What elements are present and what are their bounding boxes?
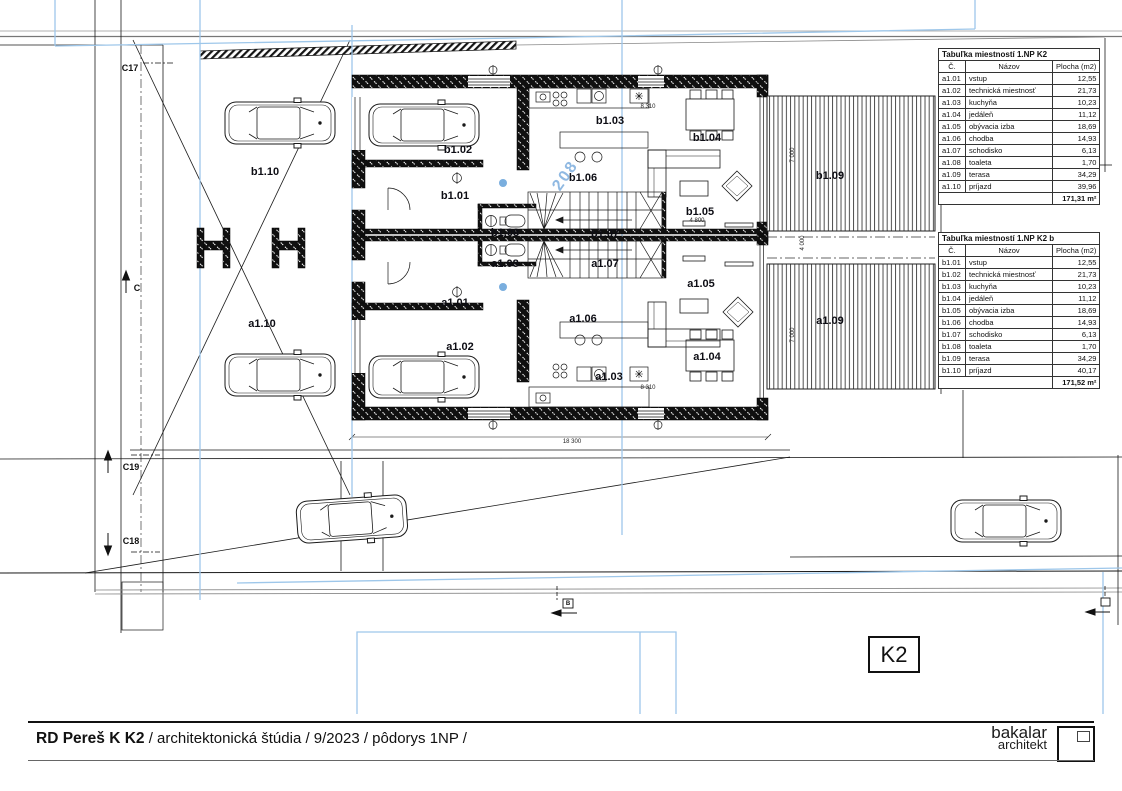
table-cell: b1.01 xyxy=(939,257,966,269)
table-cell: 10,23 xyxy=(1053,97,1100,109)
dim-kitchen-a: 8 310 xyxy=(640,385,655,391)
room-table-k2b: Tabuľka miestností 1.NP K2 bČ.NázovPloch… xyxy=(938,232,1100,389)
table-row: b1.01vstup12,55 xyxy=(939,257,1100,269)
car xyxy=(225,350,335,400)
table-row: Č.NázovPlocha (m2) xyxy=(939,245,1100,257)
table-cell: Č. xyxy=(939,61,966,73)
table-row: b1.06chodba14,93 xyxy=(939,317,1100,329)
table-cell: chodba xyxy=(966,317,1053,329)
table-cell: a1.10 xyxy=(939,181,966,193)
table-cell: 18,69 xyxy=(1053,121,1100,133)
marker-c: C xyxy=(134,283,141,293)
table-cell: b1.09 xyxy=(939,353,966,365)
table-cell: technická miestnosť xyxy=(966,85,1053,97)
project-name: RD Pereš K K2 xyxy=(36,730,145,747)
table-cell: b1.03 xyxy=(939,281,966,293)
car xyxy=(295,490,408,548)
table-row: Tabuľka miestností 1.NP K2 b xyxy=(939,233,1100,245)
table-row: a1.10príjazd39,96 xyxy=(939,181,1100,193)
table-row: Tabuľka miestností 1.NP K2 xyxy=(939,49,1100,61)
table-cell: b1.04 xyxy=(939,293,966,305)
table-row: Č.NázovPlocha (m2) xyxy=(939,61,1100,73)
room-label-a1-06: a1.06 xyxy=(569,313,597,325)
car xyxy=(951,496,1061,546)
table-row: a1.05obývacia izba18,69 xyxy=(939,121,1100,133)
room-label-a1-09: a1.09 xyxy=(816,315,844,327)
room-label-a1-10: a1.10 xyxy=(248,318,276,330)
car xyxy=(369,100,479,150)
table-cell: technická miestnosť xyxy=(966,269,1053,281)
table-row: a1.02technická miestnosť21,73 xyxy=(939,85,1100,97)
room-label-a1-01: a1.01 xyxy=(441,297,469,309)
table-row: b1.05obývacia izba18,69 xyxy=(939,305,1100,317)
table-cell: 6,13 xyxy=(1053,329,1100,341)
table-row: a1.03kuchyňa10,23 xyxy=(939,97,1100,109)
table-cell: Názov xyxy=(966,61,1053,73)
table-cell: 12,55 xyxy=(1053,73,1100,85)
table-row: b1.08toaleta1,70 xyxy=(939,341,1100,353)
table-cell: a1.06 xyxy=(939,133,966,145)
table-row: 171,52 m² xyxy=(939,377,1100,389)
table-cell: 11,12 xyxy=(1053,109,1100,121)
room-label-b1-05: b1.05 xyxy=(686,206,714,218)
room-label-a1-02: a1.02 xyxy=(446,341,474,353)
table-cell: b1.02 xyxy=(939,269,966,281)
kitchen-a xyxy=(529,322,649,407)
table-cell: príjazd xyxy=(966,365,1053,377)
titlebar-rule-top xyxy=(28,721,1094,723)
room-label-b1-01: b1.01 xyxy=(441,190,469,202)
terrace-gap-lines xyxy=(767,237,935,258)
dim-living-b: 4 800 xyxy=(689,218,704,224)
dim-terrace-b: 7 000 xyxy=(790,147,796,162)
table-cell: a1.08 xyxy=(939,157,966,169)
table-cell: 40,17 xyxy=(1053,365,1100,377)
table-cell: a1.05 xyxy=(939,121,966,133)
table-cell: schodisko xyxy=(966,145,1053,157)
table-cell xyxy=(939,377,1053,389)
table-cell: a1.03 xyxy=(939,97,966,109)
table-cell: 34,29 xyxy=(1053,169,1100,181)
table-cell: a1.09 xyxy=(939,169,966,181)
utility-symbols xyxy=(453,65,663,430)
table-cell: b1.08 xyxy=(939,341,966,353)
table-cell: 11,12 xyxy=(1053,293,1100,305)
table-cell: 14,93 xyxy=(1053,133,1100,145)
table-cell: 21,73 xyxy=(1053,269,1100,281)
room-label-a1-04: a1.04 xyxy=(693,351,721,363)
table-cell: 171,31 m² xyxy=(1053,193,1100,205)
marker-b: B xyxy=(566,601,570,607)
table-cell: Č. xyxy=(939,245,966,257)
room-label-a1-05: a1.05 xyxy=(687,278,715,290)
room-label-a1-08: a1.08 xyxy=(491,258,519,270)
table-cell: 18,69 xyxy=(1053,305,1100,317)
table-row: a1.01vstup12,55 xyxy=(939,73,1100,85)
table-row: b1.02technická miestnosť21,73 xyxy=(939,269,1100,281)
table-cell: a1.02 xyxy=(939,85,966,97)
table-cell: jedáleň xyxy=(966,293,1053,305)
table-row: b1.07schodisko6,13 xyxy=(939,329,1100,341)
table-cell: 1,70 xyxy=(1053,341,1100,353)
table-cell: 171,52 m² xyxy=(1053,377,1100,389)
table-row: a1.09terasa34,29 xyxy=(939,169,1100,181)
table-cell: schodisko xyxy=(966,329,1053,341)
architect-logo: bakalar architekt xyxy=(930,726,1047,752)
table-cell: 21,73 xyxy=(1053,85,1100,97)
room-label-b1-08: b1.08 xyxy=(491,227,519,239)
table-cell: toaleta xyxy=(966,157,1053,169)
table-row: a1.08toaleta1,70 xyxy=(939,157,1100,169)
table-cell: kuchyňa xyxy=(966,281,1053,293)
room-label-b1-02: b1.02 xyxy=(444,144,472,156)
drawing-sheet: b1.10 b1.02 b1.01 b1.03 b1.06 b1.04 b1.0… xyxy=(0,0,1122,791)
table-cell: b1.07 xyxy=(939,329,966,341)
terrace-b xyxy=(767,96,935,231)
room-label-b1-10: b1.10 xyxy=(251,166,279,178)
table-cell xyxy=(939,193,1053,205)
dim-terrace-a: 7 000 xyxy=(790,327,796,342)
table-cell: príjazd xyxy=(966,181,1053,193)
table-cell: vstup xyxy=(966,257,1053,269)
table-cell: obývacia izba xyxy=(966,121,1053,133)
table-cell: a1.01 xyxy=(939,73,966,85)
table-cell: b1.05 xyxy=(939,305,966,317)
table-cell: 39,96 xyxy=(1053,181,1100,193)
table-row: a1.07schodisko6,13 xyxy=(939,145,1100,157)
car xyxy=(369,352,479,402)
kitchen-b xyxy=(529,88,649,162)
table-cell: a1.07 xyxy=(939,145,966,157)
table-cell: kuchyňa xyxy=(966,97,1053,109)
table-cell: 14,93 xyxy=(1053,317,1100,329)
table-cell: 1,70 xyxy=(1053,157,1100,169)
table-cell: a1.04 xyxy=(939,109,966,121)
dim-living-a: 4 800 xyxy=(689,408,704,414)
table-cell: Tabuľka miestností 1.NP K2 xyxy=(939,49,1100,61)
table-row: b1.10príjazd40,17 xyxy=(939,365,1100,377)
table-cell: Tabuľka miestností 1.NP K2 b xyxy=(939,233,1100,245)
table-cell: obývacia izba xyxy=(966,305,1053,317)
table-row: 171,31 m² xyxy=(939,193,1100,205)
room-label-a1-07: a1.07 xyxy=(591,258,619,270)
table-cell: 10,23 xyxy=(1053,281,1100,293)
table-cell: 12,55 xyxy=(1053,257,1100,269)
marker-c18: C18 xyxy=(123,536,140,546)
table-row: b1.04jedáleň11,12 xyxy=(939,293,1100,305)
table-cell: chodba xyxy=(966,133,1053,145)
drawing-subtitle: / architektonická štúdia / 9/2023 / pôdo… xyxy=(145,730,467,747)
marker-c17: C17 xyxy=(122,63,139,73)
logo-mark-icon xyxy=(1057,726,1095,762)
dim-kitchen-b: 8 310 xyxy=(640,104,655,110)
table-row: b1.09terasa34,29 xyxy=(939,353,1100,365)
table-cell: b1.06 xyxy=(939,317,966,329)
table-cell: Názov xyxy=(966,245,1053,257)
table-cell: terasa xyxy=(966,353,1053,365)
table-cell: b1.10 xyxy=(939,365,966,377)
sheet-code-box: K2 xyxy=(868,636,920,673)
table-row: b1.03kuchyňa10,23 xyxy=(939,281,1100,293)
sheet-code: K2 xyxy=(881,642,908,668)
dim-terrace-gap: 4 000 xyxy=(800,235,806,250)
table-cell: jedáleň xyxy=(966,109,1053,121)
room-label-b1-07: b1.07 xyxy=(591,228,619,240)
dim-total-width: 18 300 xyxy=(563,439,581,445)
table-cell: terasa xyxy=(966,169,1053,181)
room-label-b1-04: b1.04 xyxy=(693,132,721,144)
marker-c19: C19 xyxy=(123,462,140,472)
toilet-a xyxy=(486,244,526,256)
room-label-b1-09: b1.09 xyxy=(816,170,844,182)
car xyxy=(225,98,335,148)
table-cell: toaleta xyxy=(966,341,1053,353)
toilet-b xyxy=(486,215,526,227)
stairs-b xyxy=(528,192,662,229)
room-label-a1-03: a1.03 xyxy=(595,371,623,383)
drawing-title: RD Pereš K K2 / architektonická štúdia /… xyxy=(36,730,467,748)
table-row: a1.04jedáleň11,12 xyxy=(939,109,1100,121)
table-cell: vstup xyxy=(966,73,1053,85)
logo-line2: architekt xyxy=(930,738,1047,752)
table-cell: 6,13 xyxy=(1053,145,1100,157)
room-label-b1-03: b1.03 xyxy=(596,115,624,127)
table-row: a1.06chodba14,93 xyxy=(939,133,1100,145)
table-cell: Plocha (m2) xyxy=(1053,245,1100,257)
table-cell: 34,29 xyxy=(1053,353,1100,365)
room-table-k2: Tabuľka miestností 1.NP K2Č.NázovPlocha … xyxy=(938,48,1100,205)
titlebar-rule-bottom xyxy=(28,760,1094,761)
table-cell: Plocha (m2) xyxy=(1053,61,1100,73)
